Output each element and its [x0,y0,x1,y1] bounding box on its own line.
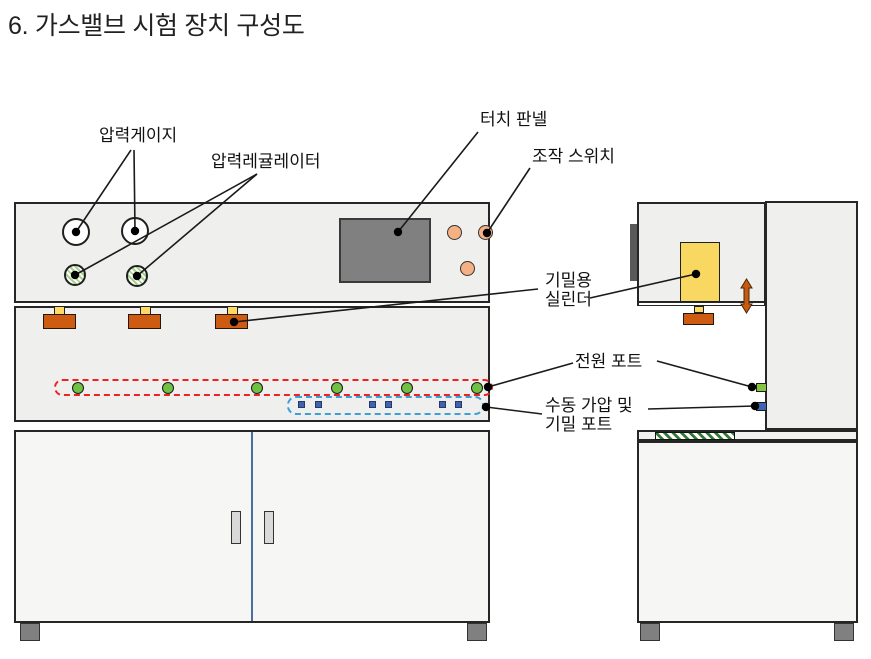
valve-fixture-1-block [43,314,76,329]
page-title: 6. 가스밸브 시험 장치 구성도 [8,6,305,42]
manual-port-indicator [756,402,767,411]
manual-port-4 [385,401,392,408]
leader-manual-port-left [486,407,542,414]
bench-foot-right [834,623,854,641]
power-port-label: 전원 포트 [575,352,642,371]
power-port-5 [401,382,413,394]
manual-port-6 [455,401,462,408]
manual-port-3 [369,401,376,408]
manual-port-label-line2: 기밀 포트 [545,415,633,434]
manual-port-label-line1: 수동 가압 및 [545,396,633,415]
door-handle-left [231,511,241,544]
touch-panel-screen [339,218,431,283]
leader-power-port-right [657,361,752,387]
power-port-group-outline [54,379,493,396]
operation-switch-1 [447,225,462,240]
power-port-3 [251,382,263,394]
manual-port-1 [298,401,305,408]
valve-fixture-3-block [215,314,248,329]
sealing-cylinder-label-line1: 기밀용 [545,271,592,290]
cabinet-foot-left [20,623,40,641]
pressure-regulator-label: 압력레귤레이터 [211,152,320,171]
manual-port-5 [439,401,446,408]
bench-body [637,441,858,623]
sealing-cylinder-body [680,242,720,302]
pressure-regulator-2 [126,265,148,287]
bench-foot-left [640,623,660,641]
touch-panel-label: 터치 판넬 [480,110,547,129]
diagram-canvas: 6. 가스밸브 시험 장치 구성도 [0,0,871,659]
side-valve-stem [694,306,704,313]
power-port-4 [331,382,343,394]
side-panel-edge-plate [630,224,637,281]
leader-dot [748,383,756,391]
power-port-2 [162,382,174,394]
leader-operation-switch [487,168,530,233]
valve-fixture-2-block [128,314,161,329]
side-right-panel [765,201,858,430]
cabinet-door-divider [251,432,253,621]
operation-switch-2 [478,225,493,240]
pressure-gauge-label: 압력게이지 [99,126,177,145]
door-handle-right [264,511,274,544]
manual-port-label: 수동 가압 및 기밀 포트 [545,396,633,434]
sealing-cylinder-label: 기밀용 실린더 [545,271,592,309]
operation-switch-3 [460,261,475,276]
pressure-gauge-1 [62,218,90,246]
manual-port-2 [315,401,322,408]
side-valve-block [683,313,714,325]
leader-manual-port-right [648,406,755,409]
power-port-indicator [756,383,767,392]
power-port-1 [72,382,84,394]
pressure-regulator-1 [64,264,86,286]
pressure-gauge-2 [121,217,149,245]
operation-switch-label: 조작 스위치 [532,147,615,166]
leader-power-port-left [488,363,573,387]
cabinet-foot-right [467,623,487,641]
power-port-6 [471,382,483,394]
bench-hatch-strip [655,432,735,440]
sealing-cylinder-label-line2: 실린더 [545,290,592,309]
